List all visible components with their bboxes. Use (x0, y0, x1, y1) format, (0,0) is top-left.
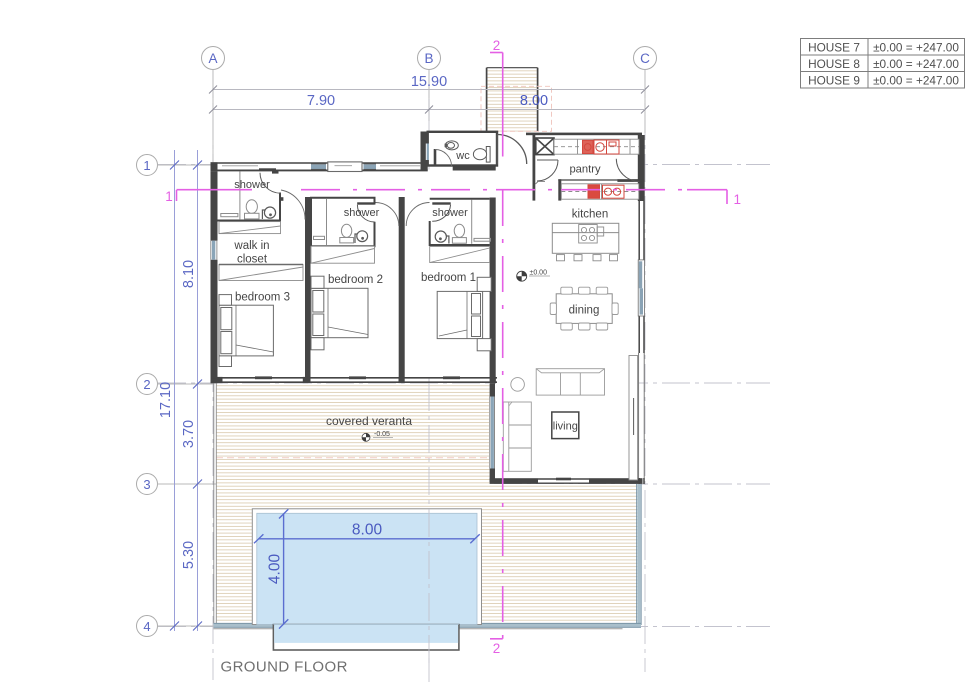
svg-text:8.00: 8.00 (520, 93, 548, 109)
svg-text:5.30: 5.30 (181, 541, 197, 569)
svg-text:±0.00 = +247.00: ±0.00 = +247.00 (873, 41, 959, 55)
svg-text:bedroom 2: bedroom 2 (328, 274, 383, 286)
svg-text:bedroom 1: bedroom 1 (421, 272, 476, 284)
svg-text:shower: shower (344, 207, 380, 219)
svg-text:pantry: pantry (569, 164, 600, 176)
svg-text:closet: closet (237, 254, 268, 266)
svg-text:shower: shower (432, 207, 468, 219)
svg-text:3.70: 3.70 (181, 420, 197, 448)
svg-text:3: 3 (143, 477, 150, 492)
svg-text:1: 1 (165, 189, 173, 204)
svg-text:HOUSE 7: HOUSE 7 (808, 41, 860, 55)
svg-text:C: C (640, 51, 650, 66)
svg-text:2: 2 (493, 38, 501, 53)
svg-text:8.10: 8.10 (181, 260, 197, 288)
svg-text:HOUSE 8: HOUSE 8 (808, 57, 860, 71)
svg-text:1: 1 (143, 158, 150, 173)
svg-text:7.90: 7.90 (307, 93, 335, 109)
svg-text:1: 1 (734, 192, 742, 207)
svg-text:±0.00: ±0.00 (530, 270, 548, 277)
svg-text:15.90: 15.90 (411, 74, 447, 90)
svg-text:kitchen: kitchen (572, 209, 608, 221)
svg-text:2: 2 (493, 641, 501, 656)
svg-text:covered veranta: covered veranta (326, 414, 412, 428)
svg-text:±0.00 = +247.00: ±0.00 = +247.00 (873, 57, 959, 71)
svg-text:4: 4 (143, 619, 150, 634)
svg-text:bedroom 3: bedroom 3 (235, 292, 290, 304)
svg-text:GROUND FLOOR: GROUND FLOOR (221, 659, 348, 676)
svg-text:walk in: walk in (233, 240, 269, 252)
svg-text:B: B (424, 51, 433, 66)
svg-text:8.00: 8.00 (352, 522, 383, 539)
svg-text:A: A (208, 51, 217, 66)
svg-text:2: 2 (143, 377, 150, 392)
svg-text:4.00: 4.00 (267, 554, 284, 585)
svg-text:±0.00 = +247.00: ±0.00 = +247.00 (873, 74, 959, 88)
svg-text:HOUSE 9: HOUSE 9 (808, 74, 860, 88)
svg-text:17.10: 17.10 (158, 382, 174, 418)
svg-text:dining: dining (569, 305, 600, 317)
svg-text:living: living (553, 421, 578, 433)
svg-text:wc: wc (455, 150, 470, 162)
